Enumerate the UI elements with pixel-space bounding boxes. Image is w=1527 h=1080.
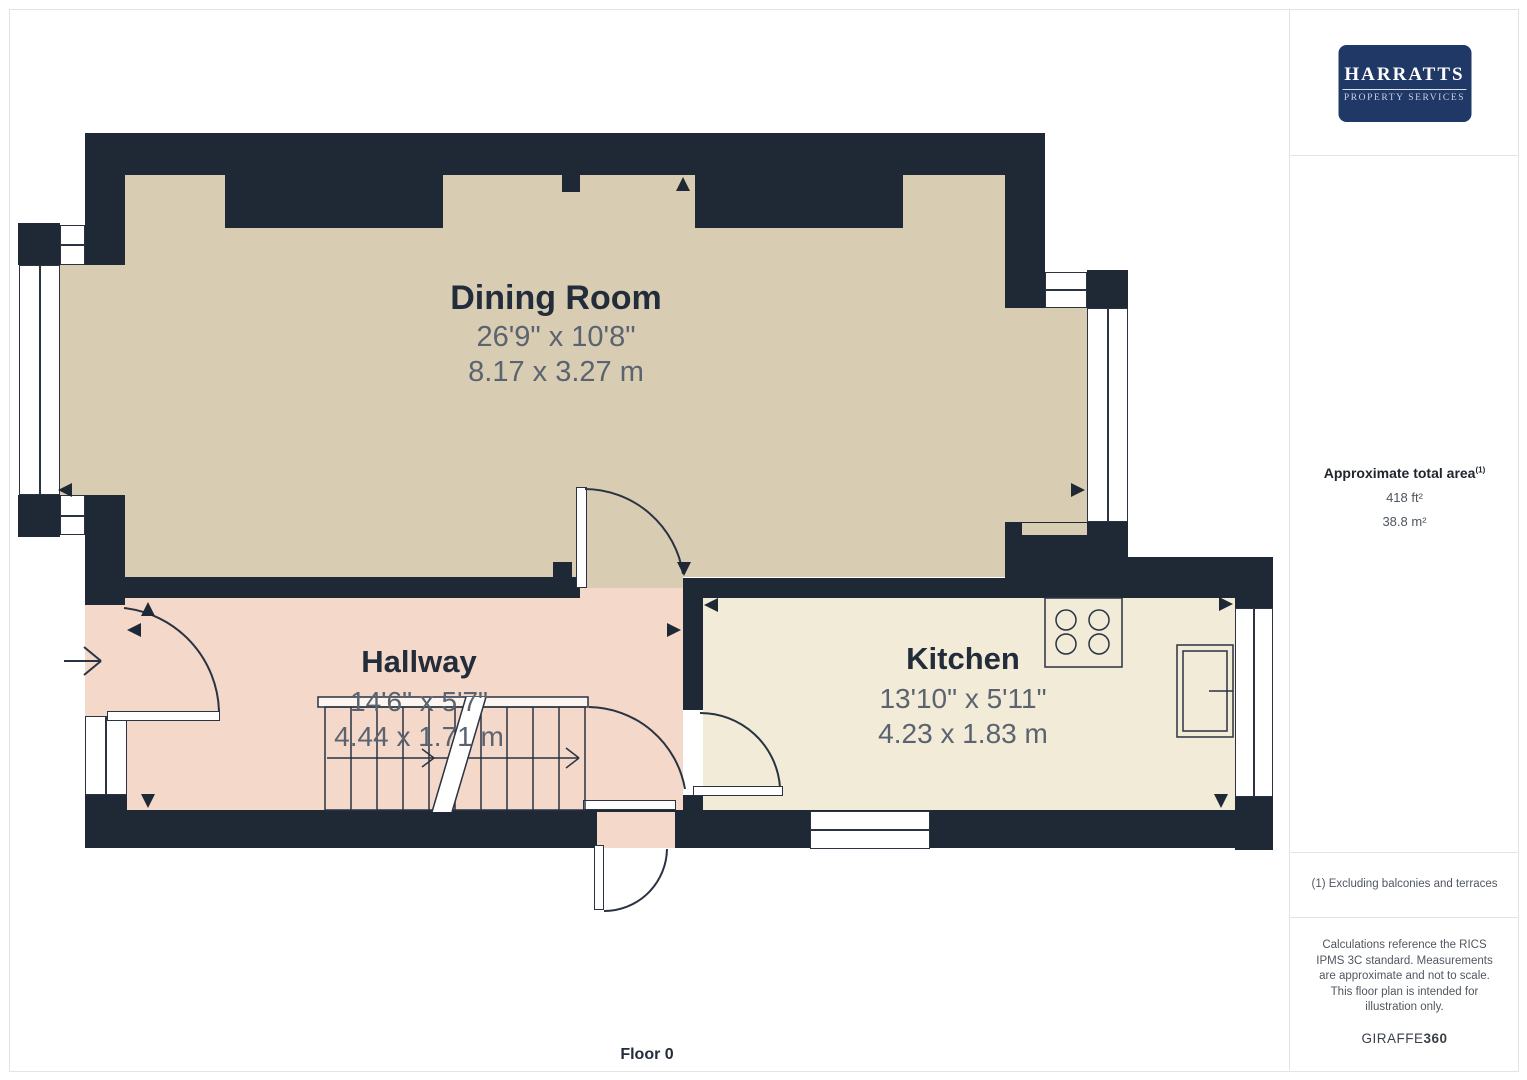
brand-suffix: 360 [1423,1031,1447,1046]
kitchen-marker-right [1219,597,1233,611]
dining-door-arc [585,489,683,574]
total-area-heading-text: Approximate total area [1324,465,1476,481]
floorplan-page: Dining Room 26'9" x 10'8" 8.17 x 3.27 m … [0,0,1527,1080]
inner-front-door-arc [589,707,685,789]
dimension-markers [58,177,1233,808]
plan-linework [0,0,1290,1080]
harratts-logo: HARRATTS PROPERTY SERVICES [1338,45,1471,122]
brand-text: GIRAFFE [1361,1031,1423,1046]
kitchen-metric: 4.23 x 1.83 m [878,716,1048,751]
entrance-arrow-icon [64,647,101,675]
hob-icon [1045,598,1122,667]
hallway-marker-right [667,623,681,637]
sidebar: HARRATTS PROPERTY SERVICES Approximate t… [1289,9,1519,1070]
total-area-m: 38.8 m² [1290,514,1519,529]
sidebar-divider-1 [1290,155,1519,156]
dining-room-imperial: 26'9" x 10'8" [450,320,662,355]
area-footnote: (1) Excluding balconies and terraces [1298,878,1511,890]
kitchen-label: Kitchen 13'10" x 5'11" 4.23 x 1.83 m [878,637,1048,751]
dining-marker-bottom [677,562,691,576]
kitchen-door-arc [700,713,780,787]
total-area-block: Approximate total area(1) 418 ft² 38.8 m… [1290,465,1519,529]
dining-marker-top [676,177,690,191]
hallway-metric: 4.44 x 1.71 m [334,719,504,754]
dining-marker-right [1071,483,1085,497]
floor-label: Floor 0 [620,1046,673,1064]
hallway-marker-top [141,602,155,616]
total-area-ft: 418 ft² [1290,490,1519,505]
hallway-name: Hallway [334,640,504,684]
logo-name: HARRATTS [1342,64,1466,90]
hallway-marker-left [127,623,141,637]
kitchen-imperial: 13'10" x 5'11" [878,681,1048,716]
hallway-imperial: 14'6" x 5'7" [334,684,504,719]
kitchen-marker-left [704,598,718,612]
sidebar-divider-3 [1290,917,1519,918]
dining-marker-left [58,483,72,497]
hallway-label: Hallway 14'6" x 5'7" 4.44 x 1.71 m [334,640,504,754]
dining-room-name: Dining Room [450,276,662,320]
total-area-heading-sup: (1) [1475,465,1485,474]
giraffe360-brand: GIRAFFE360 [1290,1031,1519,1046]
hallway-marker-bottom [141,794,155,808]
sink-icon [1177,645,1233,737]
outer-front-door-arc [604,849,667,911]
disclaimer-text: Calculations reference the RICS IPMS 3C … [1312,938,1497,1016]
kitchen-marker-bottom [1214,794,1228,808]
kitchen-name: Kitchen [878,637,1048,681]
dining-room-label: Dining Room 26'9" x 10'8" 8.17 x 3.27 m [450,276,662,390]
entry-door-arc [124,608,219,711]
dining-room-metric: 8.17 x 3.27 m [450,355,662,390]
total-area-heading: Approximate total area(1) [1290,465,1519,481]
logo-subtitle: PROPERTY SERVICES [1344,93,1465,103]
sidebar-divider-2 [1290,852,1519,853]
